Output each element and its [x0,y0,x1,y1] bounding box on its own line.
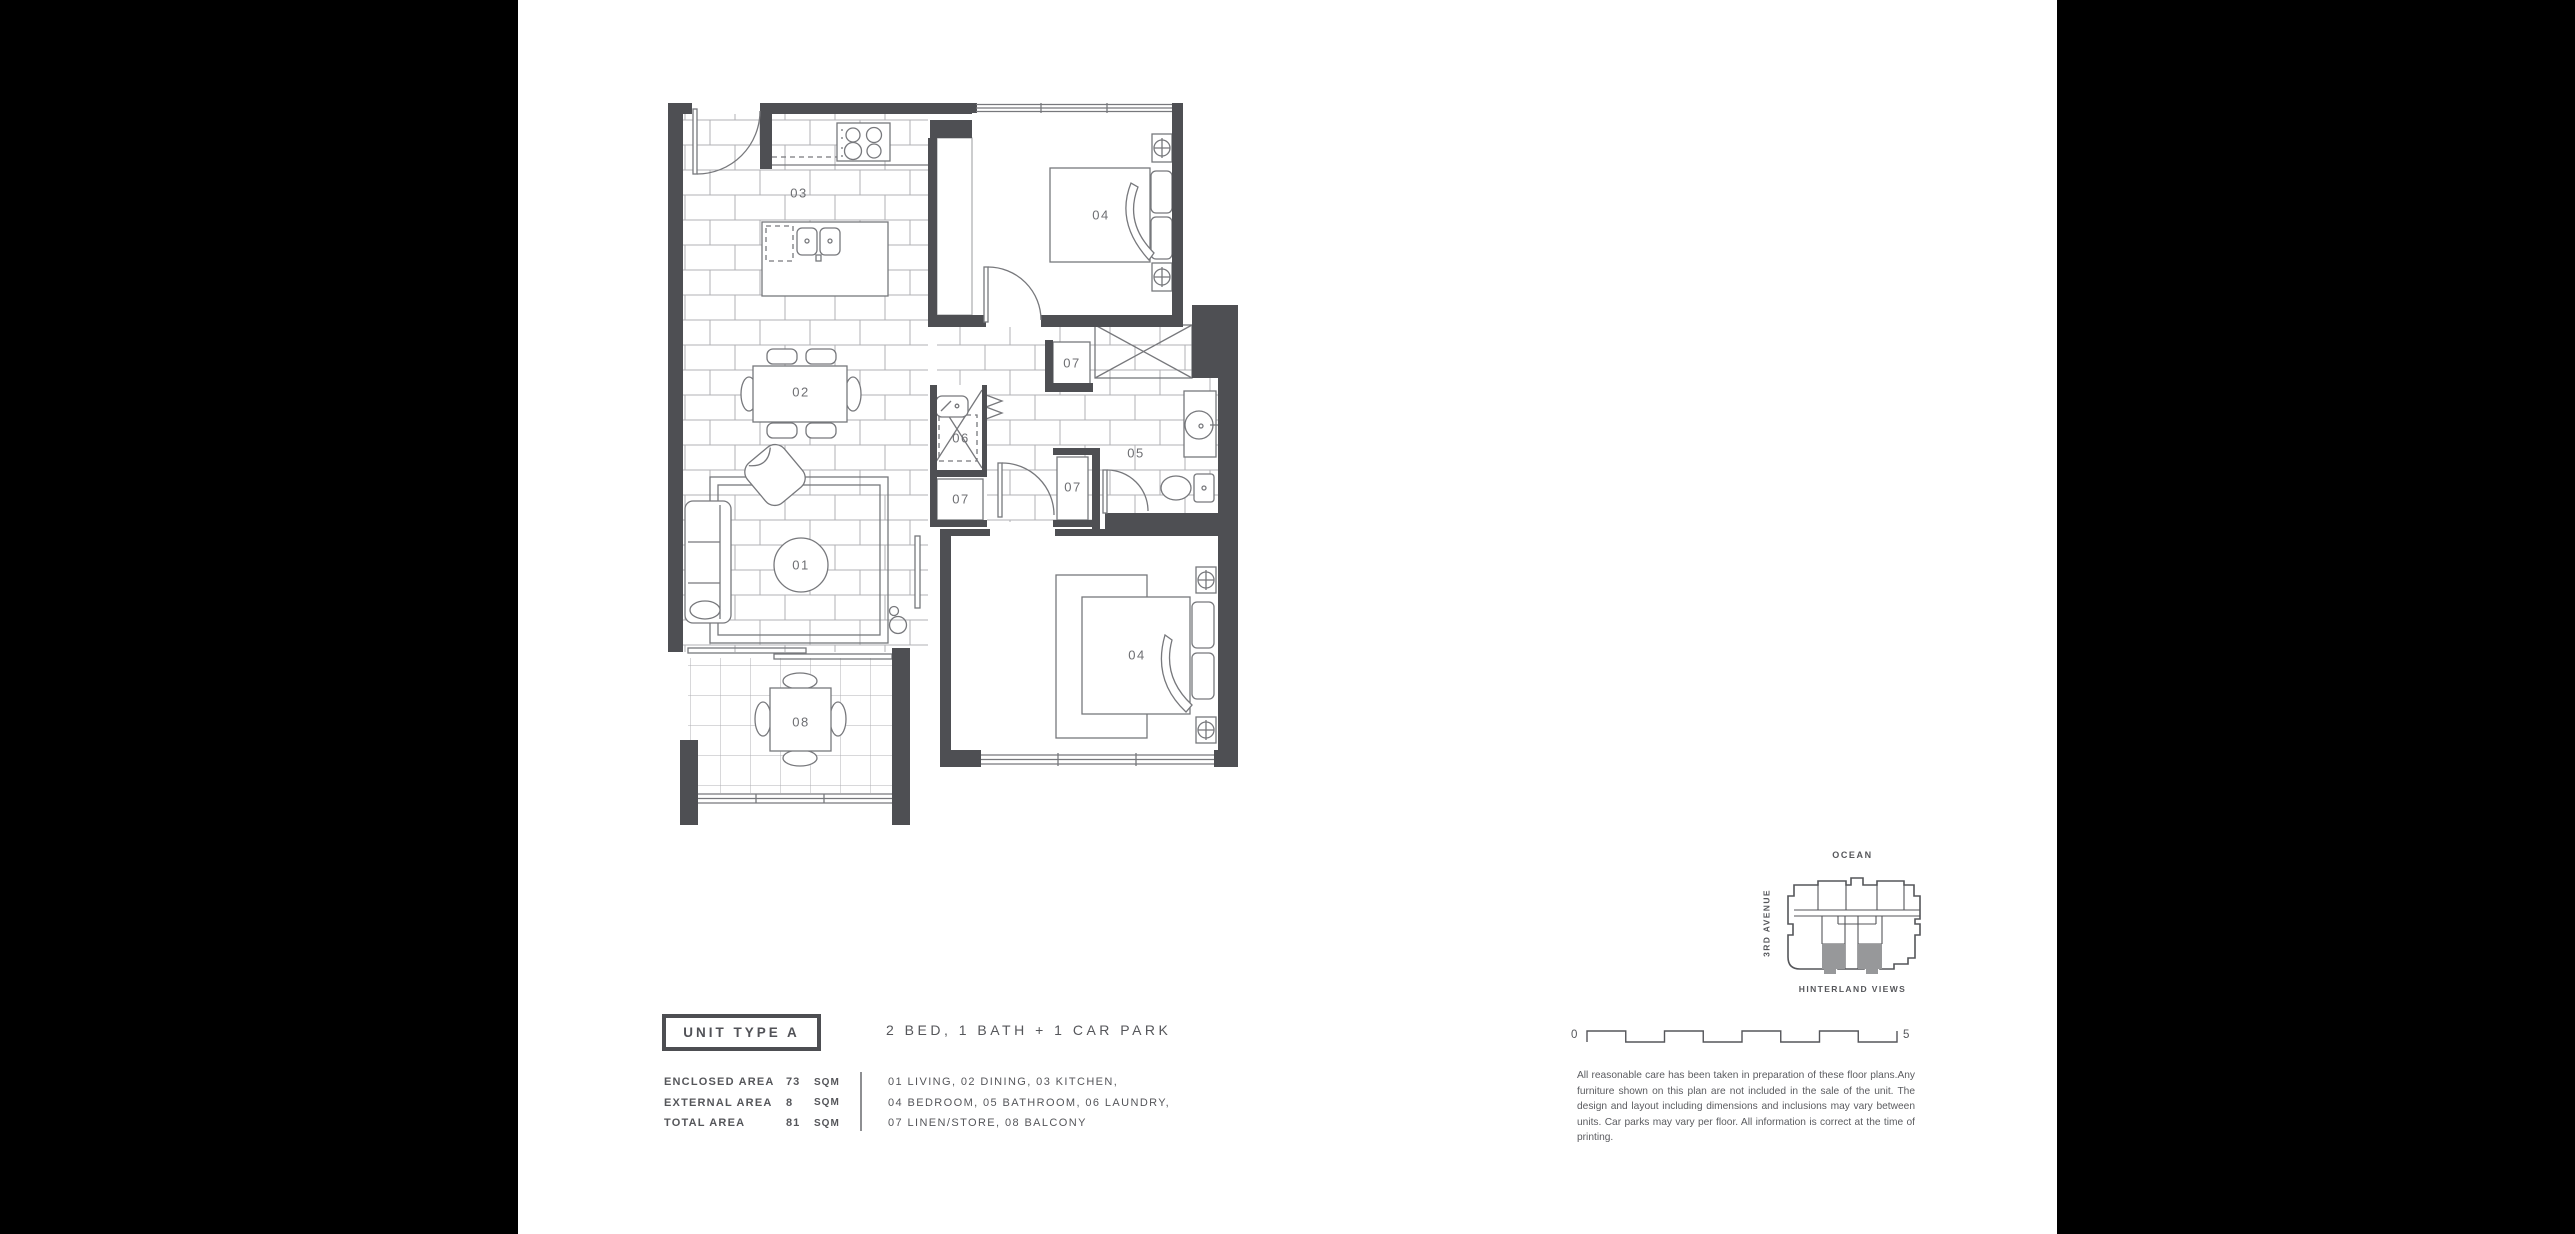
area-row: EXTERNAL AREA 8 SQM [664,1093,842,1114]
highlighted-unit [1858,944,1882,969]
highlighted-unit-tab [1866,966,1878,974]
laundry-tub-icon [936,396,968,417]
area-value: 73 [786,1076,814,1088]
downlight-icon [1152,134,1172,162]
unit-type-label: UNIT TYPE A [683,1025,800,1040]
unit-type-box: UNIT TYPE A [662,1014,821,1051]
area-label: ENCLOSED AREA [664,1076,786,1088]
legend-line: 01 LIVING, 02 DINING, 03 KITCHEN, [888,1072,1170,1093]
room-label-linen-1: 07 [1063,356,1080,371]
kitchen-island [762,222,888,296]
building-inner-lines [1794,885,1920,969]
scale-start-label: 0 [1571,1029,1577,1041]
balcony-railing [688,794,892,803]
room-label-linen-3: 07 [1064,480,1081,495]
area-unit: SQM [814,1118,840,1129]
legend-line: 04 BEDROOM, 05 BATHROOM, 06 LAUNDRY, [888,1093,1170,1114]
room-label-dining: 02 [792,385,809,400]
unit-config: 2 BED, 1 BATH + 1 CAR PARK [886,1022,1171,1038]
room-label-bedroom-2: 04 [1128,648,1145,663]
dining-chair [767,423,797,438]
bedroom-2-window [981,753,1214,766]
sofa-icon [685,501,731,623]
room-label-kitchen: 03 [790,186,807,201]
downlight-icon [1196,717,1216,743]
room-label-balcony: 08 [792,715,809,730]
floor-plan: 03 02 01 08 04 04 05 06 07 07 07 [660,95,1245,830]
room-label-living: 01 [792,558,809,573]
pillow [1192,602,1214,648]
disclaimer-text: All reasonable care has been taken in pr… [1577,1068,1915,1146]
downlight-icon [1152,263,1172,291]
highlighted-unit [1822,944,1845,969]
scale-bar [1586,1030,1898,1044]
bedroom-1-area [1050,134,1172,291]
balcony-chair [755,702,771,736]
dining-chair [806,423,836,438]
balcony-chair [830,702,846,736]
vertical-divider [860,1072,862,1131]
keyplan-hinterland-label: HINTERLAND VIEWS [1780,984,1925,994]
stove-icon [837,123,890,161]
bedroom-1-door [984,267,1041,322]
room-label-linen-2: 07 [952,492,969,507]
services-void [937,138,972,315]
area-row: TOTAL AREA 81 SQM [664,1113,842,1134]
room-label-laundry: 06 [952,431,969,446]
area-table: ENCLOSED AREA 73 SQM EXTERNAL AREA 8 SQM… [664,1072,842,1134]
highlighted-unit-tab [1824,966,1836,974]
scale-end-label: 5 [1903,1029,1909,1041]
room-legend: 01 LIVING, 02 DINING, 03 KITCHEN, 04 BED… [888,1072,1170,1134]
balcony-chair [783,750,817,766]
floorplan-page: 03 02 01 08 04 04 05 06 07 07 07 UNIT TY… [518,0,2057,1234]
downlight-icon [1196,567,1216,593]
pillow [1192,653,1214,699]
area-label: EXTERNAL AREA [664,1097,786,1109]
room-label-bedroom-1: 04 [1092,208,1109,223]
area-unit: SQM [814,1097,840,1108]
tv-unit [915,536,920,608]
keyplan-ocean-label: OCEAN [1780,850,1925,860]
room-label-bathroom: 05 [1127,446,1144,461]
keyplan-street-label: 3RD AVENUE [1762,851,1772,996]
balcony-chair [783,673,817,689]
pillow [1151,171,1172,213]
bedroom-1-window [976,103,1172,113]
building-key-plan [1780,872,1930,982]
dining-chair [806,349,836,364]
area-value: 81 [786,1117,814,1129]
area-row: ENCLOSED AREA 73 SQM [664,1072,842,1093]
area-value: 8 [786,1097,814,1109]
area-label: TOTAL AREA [664,1117,786,1129]
legend-line: 07 LINEN/STORE, 08 BALCONY [888,1113,1170,1134]
dining-chair [767,349,797,364]
area-unit: SQM [814,1077,840,1088]
